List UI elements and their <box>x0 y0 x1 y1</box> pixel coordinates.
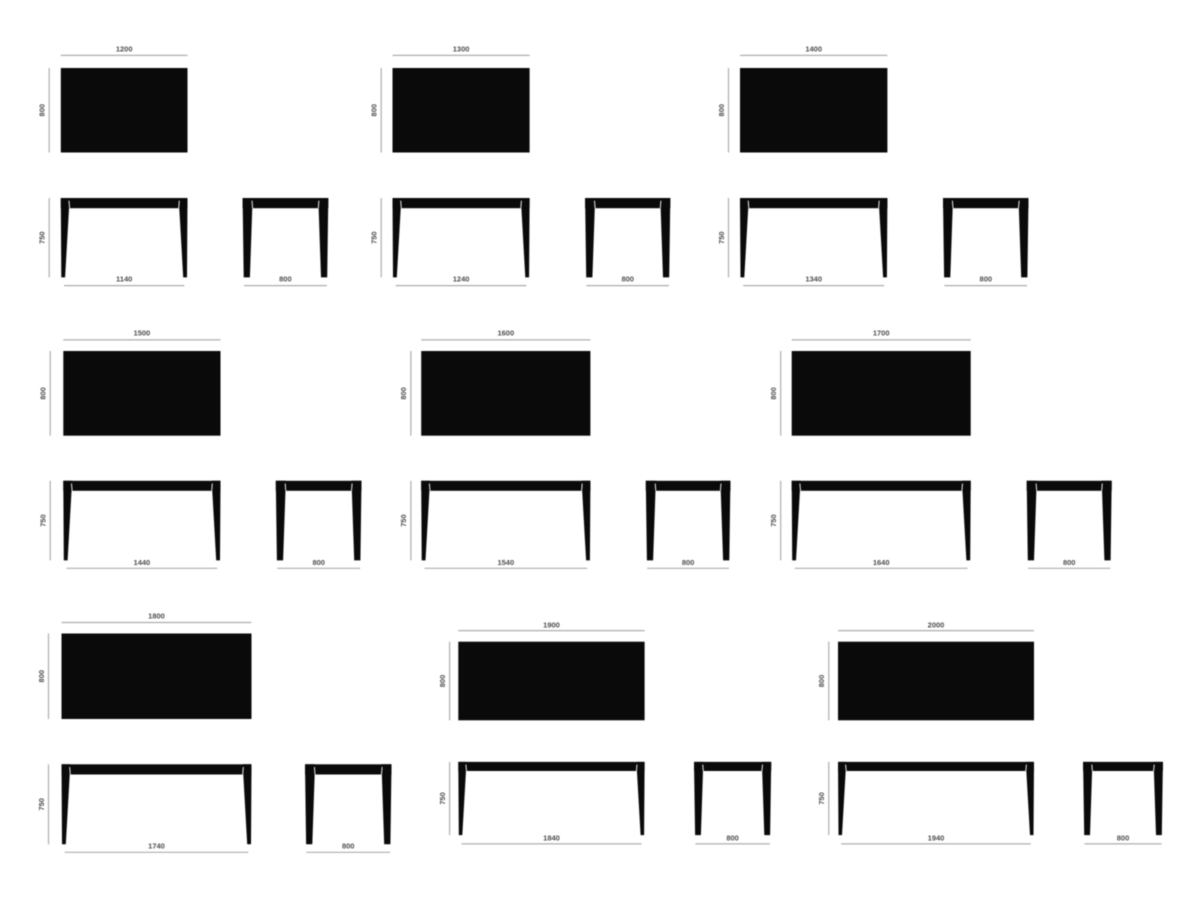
svg-text:1540: 1540 <box>497 558 514 567</box>
svg-text:750: 750 <box>370 231 379 244</box>
svg-text:750: 750 <box>38 231 47 244</box>
svg-text:800: 800 <box>38 104 47 117</box>
svg-text:800: 800 <box>817 675 826 688</box>
svg-text:1240: 1240 <box>453 275 470 284</box>
svg-text:1600: 1600 <box>497 328 514 337</box>
svg-text:800: 800 <box>37 670 46 683</box>
svg-text:800: 800 <box>1063 558 1076 567</box>
svg-text:1200: 1200 <box>116 45 133 54</box>
svg-text:1440: 1440 <box>134 558 151 567</box>
svg-text:800: 800 <box>312 558 325 567</box>
svg-text:750: 750 <box>717 231 726 244</box>
svg-text:1140: 1140 <box>116 275 132 284</box>
svg-text:800: 800 <box>39 387 48 400</box>
svg-text:800: 800 <box>980 275 993 284</box>
svg-text:800: 800 <box>717 104 726 117</box>
svg-text:1340: 1340 <box>805 275 822 284</box>
svg-text:750: 750 <box>769 514 778 527</box>
svg-text:1740: 1740 <box>148 841 165 850</box>
svg-text:1800: 1800 <box>148 612 165 621</box>
svg-text:800: 800 <box>279 275 292 284</box>
svg-text:1840: 1840 <box>543 834 560 843</box>
svg-text:2000: 2000 <box>928 620 945 629</box>
svg-text:750: 750 <box>399 514 408 527</box>
svg-text:800: 800 <box>682 558 695 567</box>
svg-text:1300: 1300 <box>453 45 470 54</box>
svg-text:1400: 1400 <box>805 45 822 54</box>
svg-text:800: 800 <box>726 834 739 843</box>
svg-text:1640: 1640 <box>873 558 890 567</box>
svg-text:1940: 1940 <box>928 834 945 843</box>
svg-text:750: 750 <box>438 792 447 805</box>
svg-text:750: 750 <box>817 792 826 805</box>
svg-text:800: 800 <box>370 104 379 117</box>
svg-text:800: 800 <box>438 675 447 688</box>
svg-text:1700: 1700 <box>873 328 890 337</box>
svg-text:1500: 1500 <box>134 328 151 337</box>
svg-text:1900: 1900 <box>543 620 560 629</box>
svg-text:750: 750 <box>39 514 48 527</box>
svg-text:750: 750 <box>37 798 46 811</box>
svg-text:800: 800 <box>399 387 408 400</box>
svg-text:800: 800 <box>342 841 355 850</box>
svg-text:800: 800 <box>621 275 634 284</box>
svg-text:800: 800 <box>1117 834 1130 843</box>
svg-text:800: 800 <box>769 387 778 400</box>
